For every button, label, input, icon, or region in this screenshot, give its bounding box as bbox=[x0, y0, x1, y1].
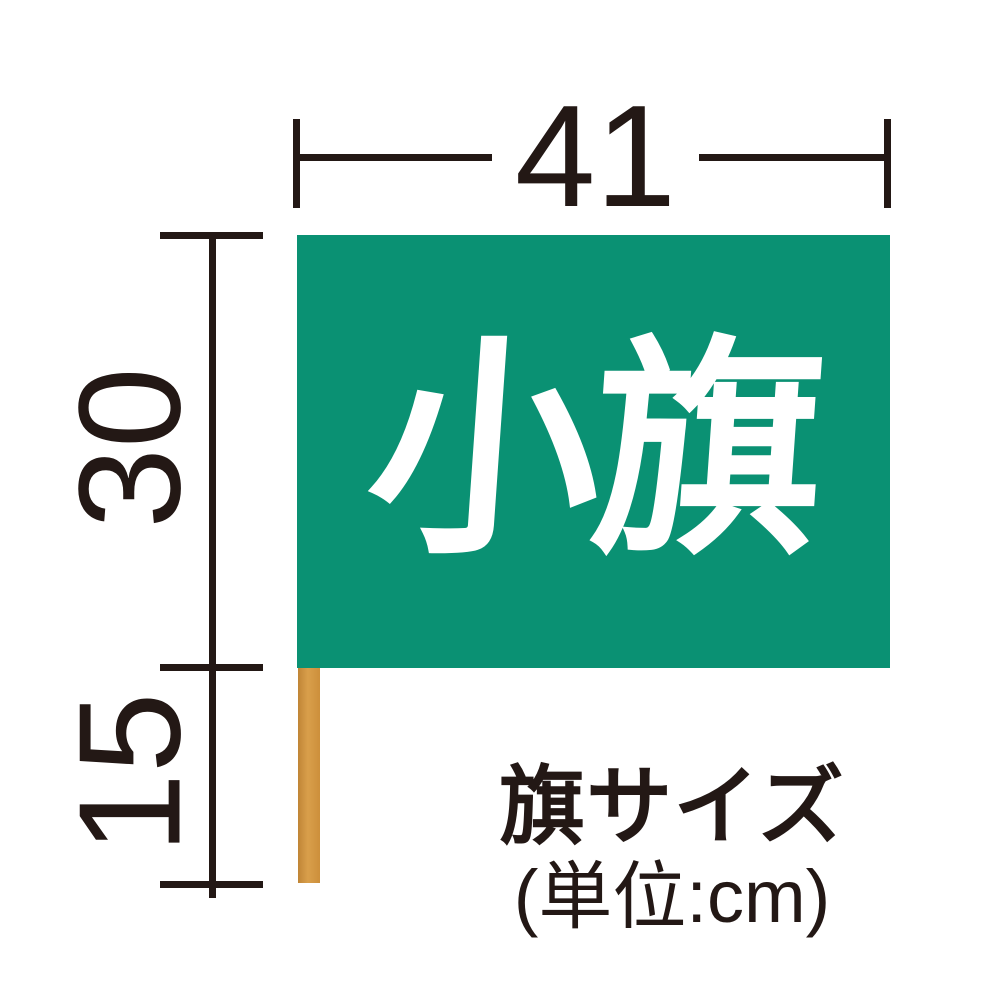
height-dimension-middle-tick bbox=[160, 664, 263, 671]
caption-title: 旗サイズ bbox=[452, 762, 892, 852]
caption-unit-note: (単位:cm) bbox=[452, 858, 892, 936]
caption: 旗サイズ (単位:cm) bbox=[452, 762, 892, 936]
pole-below-dimension-value: 15 bbox=[58, 692, 203, 853]
height-dimension-bottom-tick bbox=[160, 881, 263, 888]
size-diagram: 41 30 15 小旗 旗サイズ (単位:cm) bbox=[0, 0, 1000, 1000]
flag-rectangle: 小旗 bbox=[297, 235, 890, 668]
height-dimension-top-tick bbox=[160, 232, 263, 239]
flag-label: 小旗 bbox=[361, 336, 825, 568]
width-dimension-right-tick bbox=[884, 119, 891, 208]
width-dimension-line-right-segment bbox=[699, 154, 890, 161]
width-dimension-line-left-segment bbox=[296, 154, 492, 161]
flag-pole bbox=[298, 668, 320, 883]
width-dimension-value: 41 bbox=[492, 84, 699, 229]
width-dimension-left-tick bbox=[293, 119, 300, 208]
flag-height-dimension-value: 30 bbox=[58, 367, 203, 528]
